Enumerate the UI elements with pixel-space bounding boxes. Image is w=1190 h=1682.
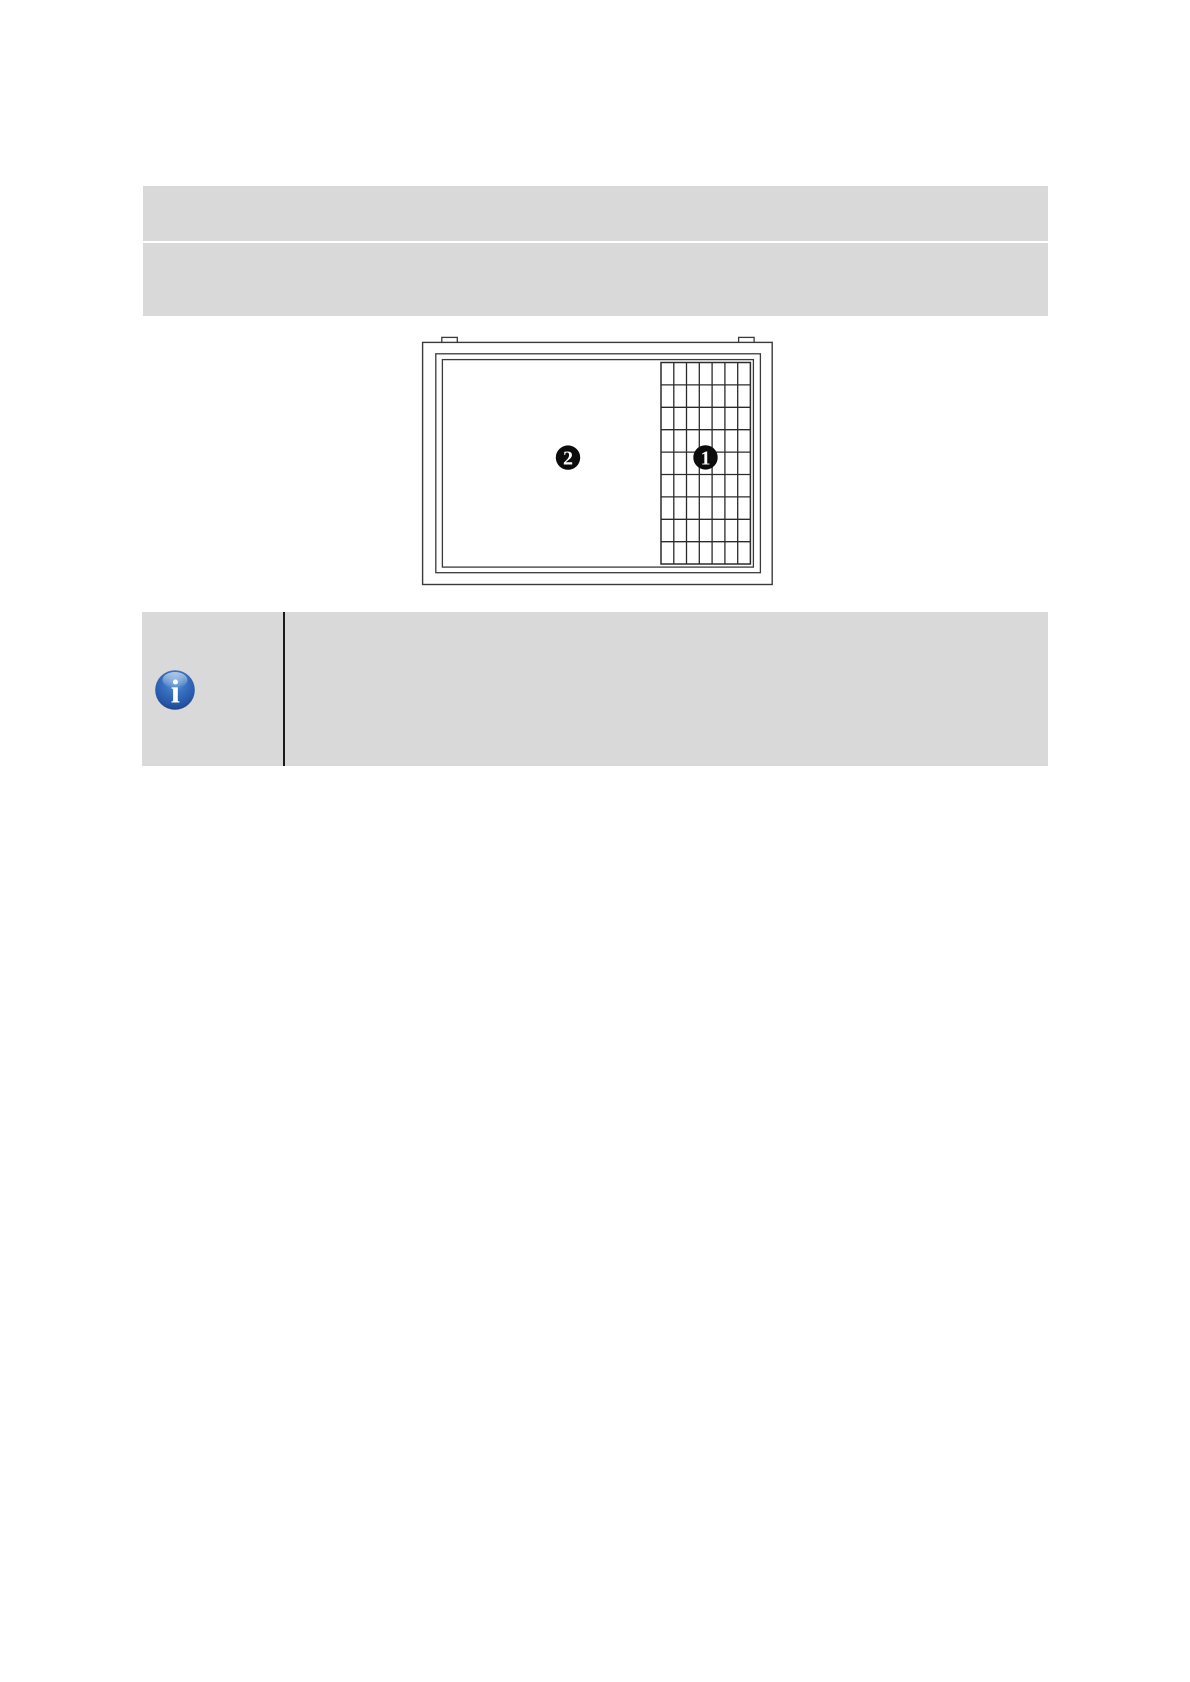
svg-text:i: i [171, 675, 180, 711]
svg-text:1: 1 [701, 447, 711, 469]
svg-text:2: 2 [563, 448, 573, 470]
